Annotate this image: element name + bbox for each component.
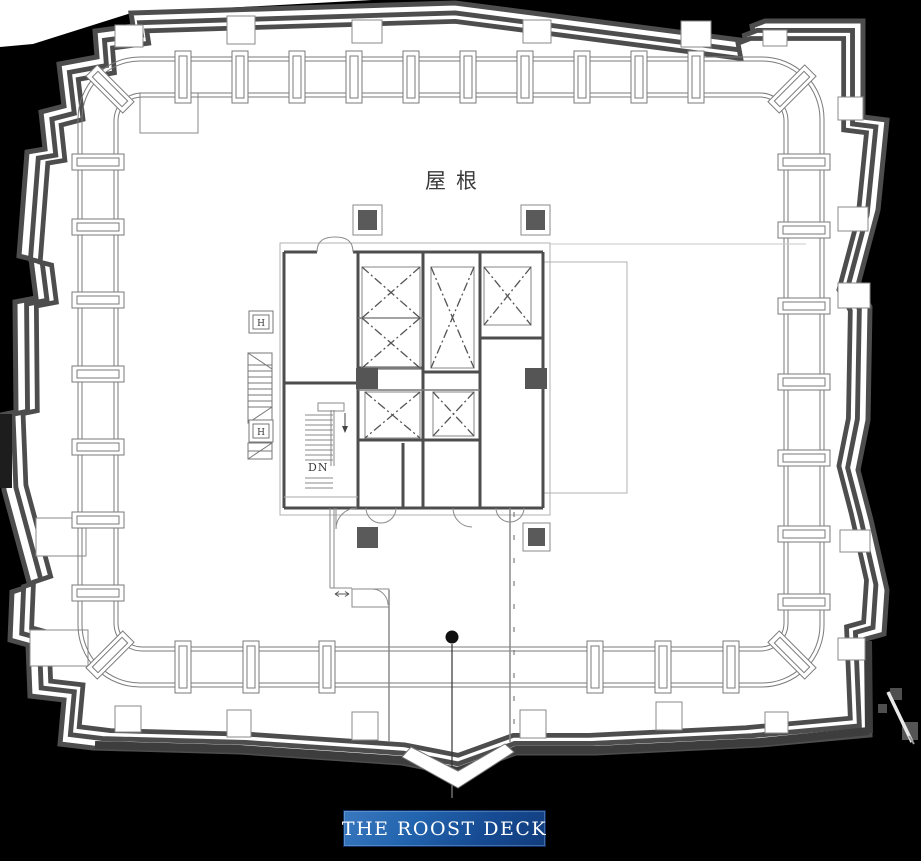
entry-point-marker: [446, 631, 459, 644]
roof-label: 屋根: [425, 169, 487, 193]
deck-name-badge: THE ROOST DECK: [343, 810, 546, 847]
stairs-down-label: DN: [308, 461, 328, 474]
building-outline: [0, 3, 887, 774]
hydrant-and-ladders: H H: [248, 311, 273, 459]
floor-plan-page: 屋根: [0, 0, 921, 861]
small-hatch: [248, 443, 272, 459]
hydrant-box-label: H: [257, 319, 265, 329]
roof-ladder: [248, 353, 272, 423]
floor-plan-drawing: 屋根: [0, 0, 921, 861]
deck-name-label: THE ROOST DECK: [342, 818, 547, 840]
hydrant-box-label: H: [257, 428, 265, 438]
